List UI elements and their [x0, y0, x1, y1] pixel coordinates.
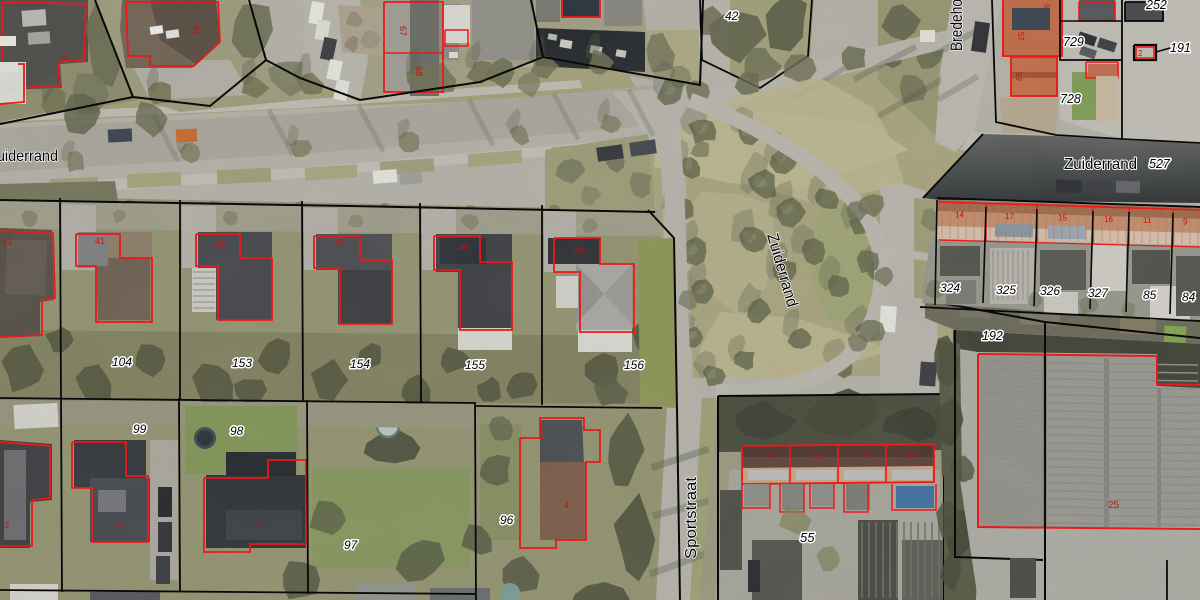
svg-text:324: 324	[940, 281, 960, 295]
svg-text:728: 728	[1060, 92, 1081, 106]
svg-text:7: 7	[258, 520, 263, 530]
svg-text:Sportstraat: Sportstraat	[683, 476, 700, 559]
svg-text:98: 98	[230, 424, 244, 438]
svg-text:15: 15	[1058, 214, 1067, 223]
svg-text:192: 192	[982, 329, 1003, 343]
svg-text:16: 16	[1104, 215, 1113, 224]
svg-text:35: 35	[458, 242, 468, 252]
svg-text:84: 84	[1182, 290, 1196, 304]
svg-text:96: 96	[500, 513, 514, 527]
svg-text:17: 17	[1005, 212, 1014, 221]
svg-text:327: 327	[1088, 286, 1109, 300]
svg-text:94: 94	[191, 25, 201, 35]
svg-text:27: 27	[862, 451, 871, 460]
svg-text:68: 68	[414, 66, 424, 76]
svg-text:37: 37	[335, 238, 345, 248]
svg-text:4: 4	[564, 500, 569, 510]
svg-text:67: 67	[398, 26, 408, 36]
svg-text:104: 104	[112, 355, 132, 369]
svg-text:5: 5	[118, 520, 123, 530]
svg-text:97: 97	[344, 538, 359, 552]
svg-text:153: 153	[232, 356, 252, 370]
svg-text:14: 14	[955, 211, 964, 220]
svg-text:325: 325	[996, 283, 1016, 297]
svg-text:28: 28	[814, 452, 823, 461]
svg-text:Bredeho: Bredeho	[948, 0, 966, 51]
svg-text:729: 729	[1063, 35, 1084, 49]
svg-text:5: 5	[1042, 4, 1051, 9]
svg-text:85: 85	[1143, 288, 1157, 302]
svg-text:25: 25	[1108, 500, 1120, 511]
svg-text:26: 26	[908, 450, 917, 459]
svg-text:55: 55	[800, 530, 815, 545]
svg-text:29: 29	[766, 453, 775, 462]
svg-text:9: 9	[1183, 217, 1188, 226]
svg-text:3: 3	[4, 520, 9, 530]
svg-text:156: 156	[624, 358, 644, 372]
svg-text:Zuiderrand: Zuiderrand	[1064, 156, 1137, 173]
svg-text:Zuiderrand: Zuiderrand	[0, 148, 58, 165]
svg-text:2: 2	[1138, 49, 1143, 58]
svg-text:42: 42	[725, 9, 739, 23]
svg-text:155: 155	[465, 358, 485, 372]
svg-text:99: 99	[133, 422, 147, 436]
svg-text:57: 57	[1016, 32, 1025, 41]
svg-text:252: 252	[1145, 0, 1167, 12]
svg-text:11: 11	[1143, 216, 1152, 225]
svg-text:326: 326	[1040, 284, 1060, 298]
svg-text:527: 527	[1149, 157, 1171, 171]
svg-text:59: 59	[1014, 72, 1023, 81]
svg-text:43: 43	[2, 237, 12, 247]
svg-text:39: 39	[215, 239, 225, 249]
svg-text:33: 33	[574, 246, 584, 256]
svg-text:41: 41	[95, 236, 105, 246]
svg-text:6: 6	[62, 52, 67, 62]
svg-text:154: 154	[350, 357, 370, 371]
svg-text:191: 191	[1170, 41, 1191, 55]
